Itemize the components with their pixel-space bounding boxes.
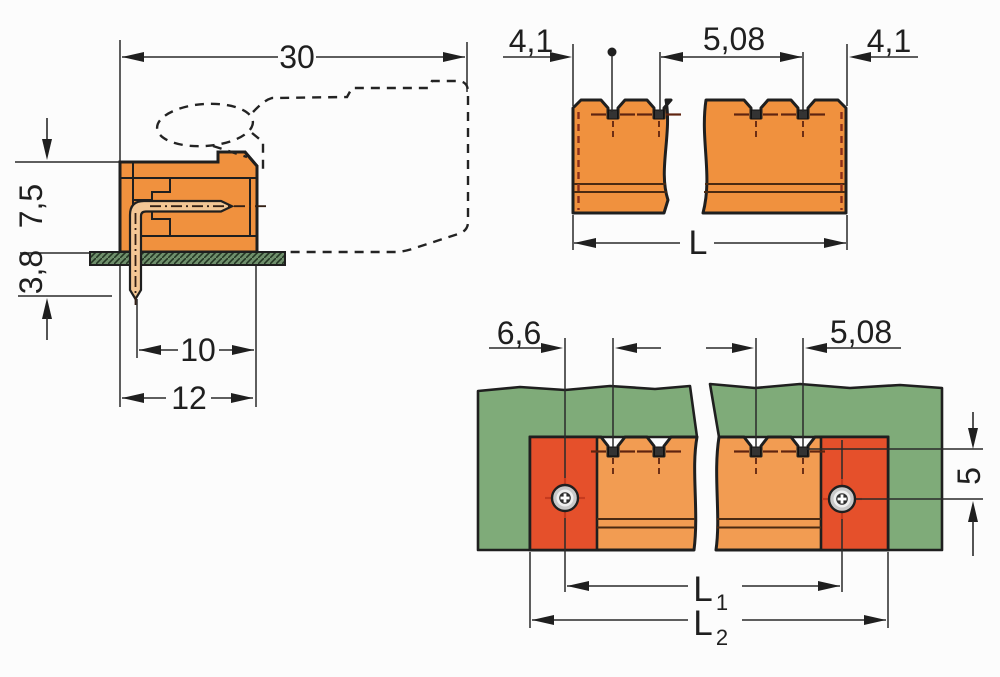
dim-L-label: L [689,224,708,262]
connector-dimension-drawing: 30 7,5 3,8 [0,0,1000,677]
technical-drawing-page: 30 7,5 3,8 [0,0,1000,677]
dim-L1-sub: 1 [716,590,728,615]
pin1-dot [608,48,617,57]
dim-75-label: 7,5 [13,184,49,228]
dim-L2-base: L [693,604,712,643]
pin-2 [655,447,664,456]
dim-12-label: 12 [171,380,207,416]
dim-5-label: 5 [951,467,987,485]
dim-41-right-label: 4,1 [867,23,911,59]
dim-30-label: 30 [279,39,315,75]
pin-3 [752,447,761,456]
dim-41-left-label: 4,1 [509,23,553,59]
pin-3 [752,110,761,119]
dim-508-front-label: 5,08 [703,21,765,57]
pin-1 [609,110,618,119]
dim-66-label: 6,6 [497,315,541,351]
dim-508-board-label: 5,08 [830,314,892,350]
pcb-board-strip [90,252,285,265]
dim-L2-sub: 2 [716,625,728,650]
dim-38-label: 3,8 [13,250,49,294]
dim-10-label: 10 [180,332,216,368]
pin-1 [609,447,618,456]
pin-2 [655,110,664,119]
header-body-right-section [703,100,846,213]
